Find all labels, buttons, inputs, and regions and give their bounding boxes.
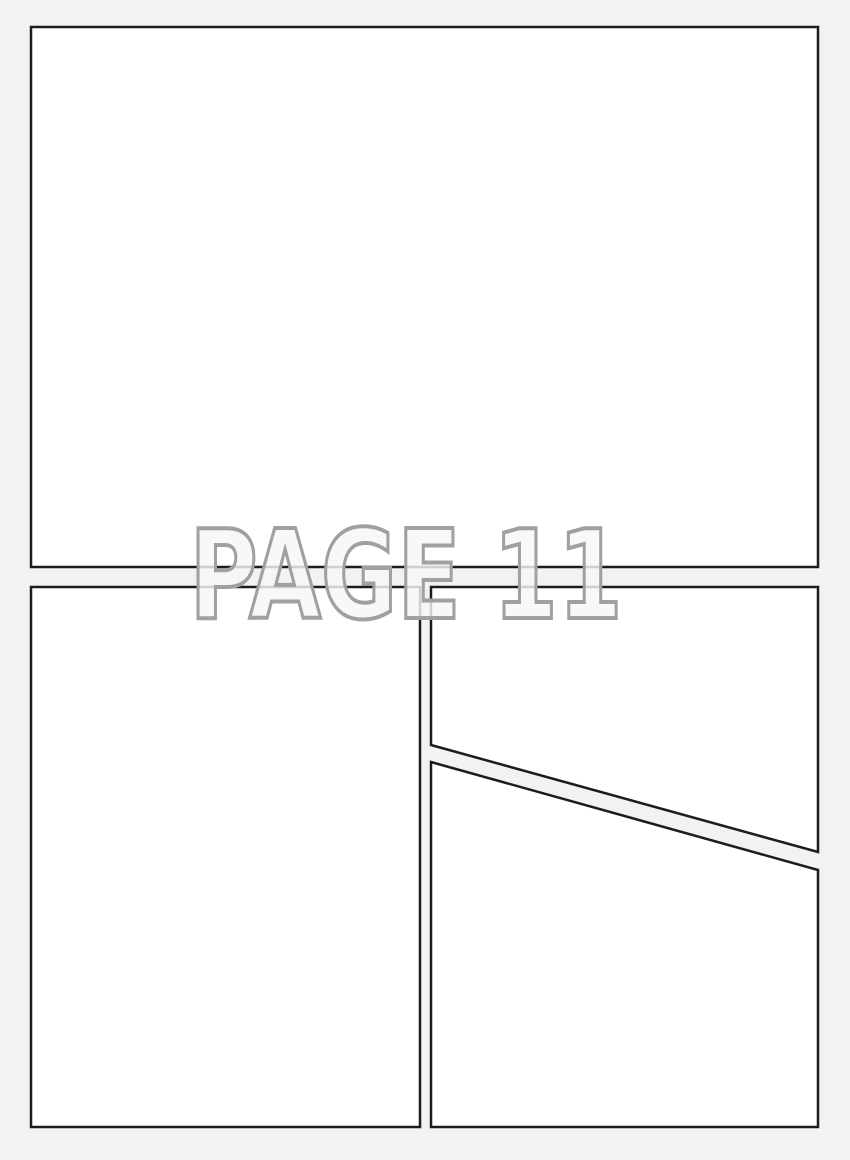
page-label-group: PAGE 11 (190, 505, 623, 648)
panel-top (31, 27, 818, 567)
panel-bottom-left (31, 587, 420, 1127)
comic-page-canvas: PAGE 11 (0, 0, 850, 1160)
page-number-label: PAGE 11 (190, 505, 623, 648)
